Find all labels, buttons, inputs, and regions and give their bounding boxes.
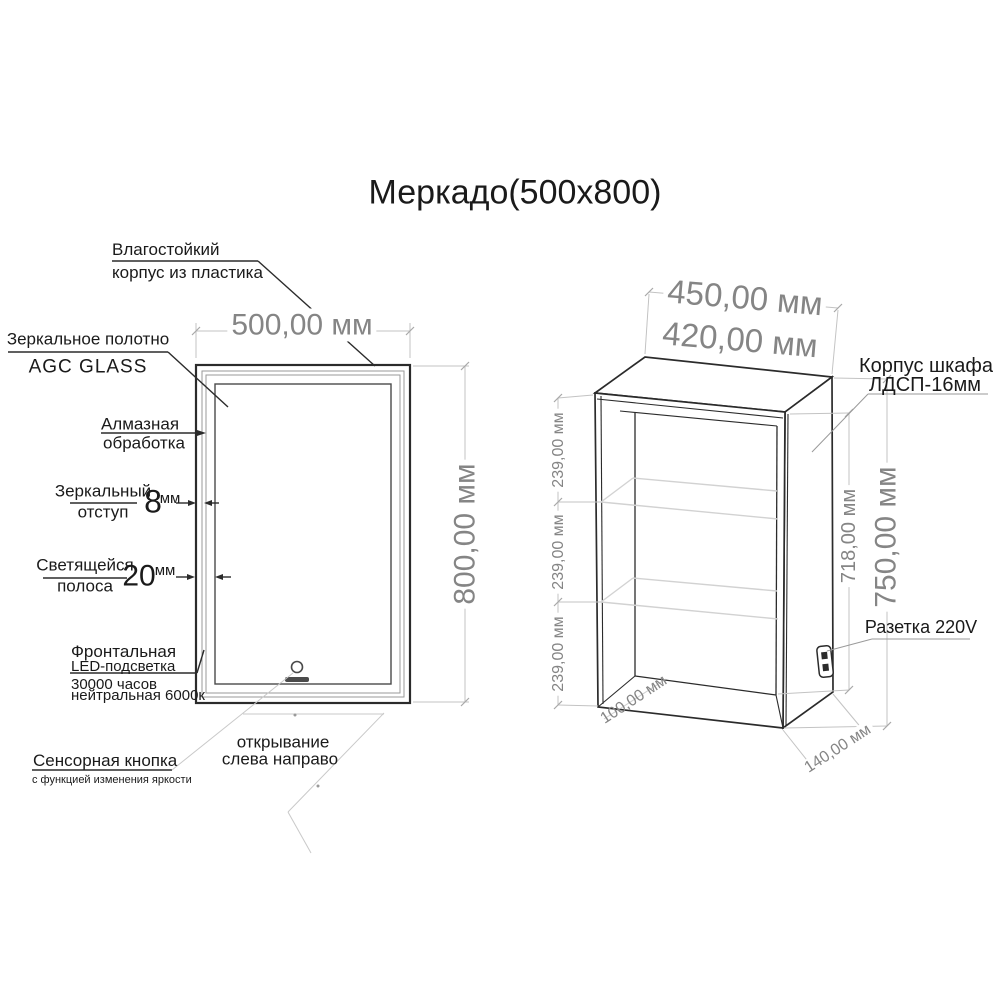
- opening-label-line2: слева направо: [222, 751, 338, 770]
- offset-label-line2: отступ: [78, 504, 129, 523]
- shelf-dim-1: 239,00 мм: [550, 408, 568, 491]
- mirror-height-dim: 800,00 мм: [449, 459, 482, 608]
- cabinet-inner-height-dim: 718,00 мм: [838, 485, 860, 587]
- led-label-line2: LED-подсветка: [71, 659, 175, 676]
- sensor-button-circle: [292, 662, 303, 673]
- sensor-label-line1: Сенсорная кнопка: [33, 752, 177, 771]
- edge-label-line1: Алмазная: [101, 416, 179, 435]
- strip-unit: мм: [155, 563, 176, 580]
- strip-arrowhead-right: [187, 574, 195, 580]
- shelf-dim-2: 239,00 мм: [550, 510, 568, 593]
- technical-drawing-page: Меркадо(500x800) Влагостойкий корпус из …: [0, 0, 1000, 1000]
- opening-dot-2: [317, 785, 320, 788]
- page-title: Меркадо(500x800): [369, 174, 662, 211]
- cabinet-drawing: [595, 357, 834, 728]
- opening-line-diagonal-2: [288, 812, 311, 853]
- body-label-line2: ЛДСП-16мм: [869, 374, 981, 396]
- socket-label: Разетка 220V: [865, 618, 977, 638]
- shelf-dim-3: 239,00 мм: [550, 612, 568, 695]
- cabinet-height-dim: 750,00 мм: [870, 462, 903, 611]
- glass-label-line1: Зеркальное полотно: [7, 331, 169, 350]
- case-label-line1: Влагостойкий: [112, 241, 219, 260]
- mirror-drawing: [196, 365, 410, 703]
- case-label-line2: корпус из пластика: [112, 264, 263, 283]
- strip-value: 20: [122, 560, 155, 593]
- offset-label-line1: Зеркальный: [55, 483, 151, 502]
- offset-arrowhead-right: [188, 500, 196, 506]
- cabinet-front-face: [595, 393, 785, 728]
- brand-logo: [285, 677, 309, 682]
- led-label-line4: нейтральная 6000к: [71, 688, 205, 705]
- mirror-outer-frame: [196, 365, 410, 703]
- edge-label-line2: обработка: [103, 435, 185, 454]
- mirror-width-dim: 500,00 мм: [227, 309, 376, 342]
- opening-dot-1: [294, 714, 297, 717]
- strip-label-line1: Светящейся: [36, 557, 133, 576]
- sensor-label-line2: с функцией изменения яркости: [32, 774, 192, 786]
- offset-unit: мм: [160, 491, 181, 508]
- glass-label-line2: AGC GLASS: [29, 358, 148, 379]
- strip-label-line2: полоса: [57, 578, 113, 597]
